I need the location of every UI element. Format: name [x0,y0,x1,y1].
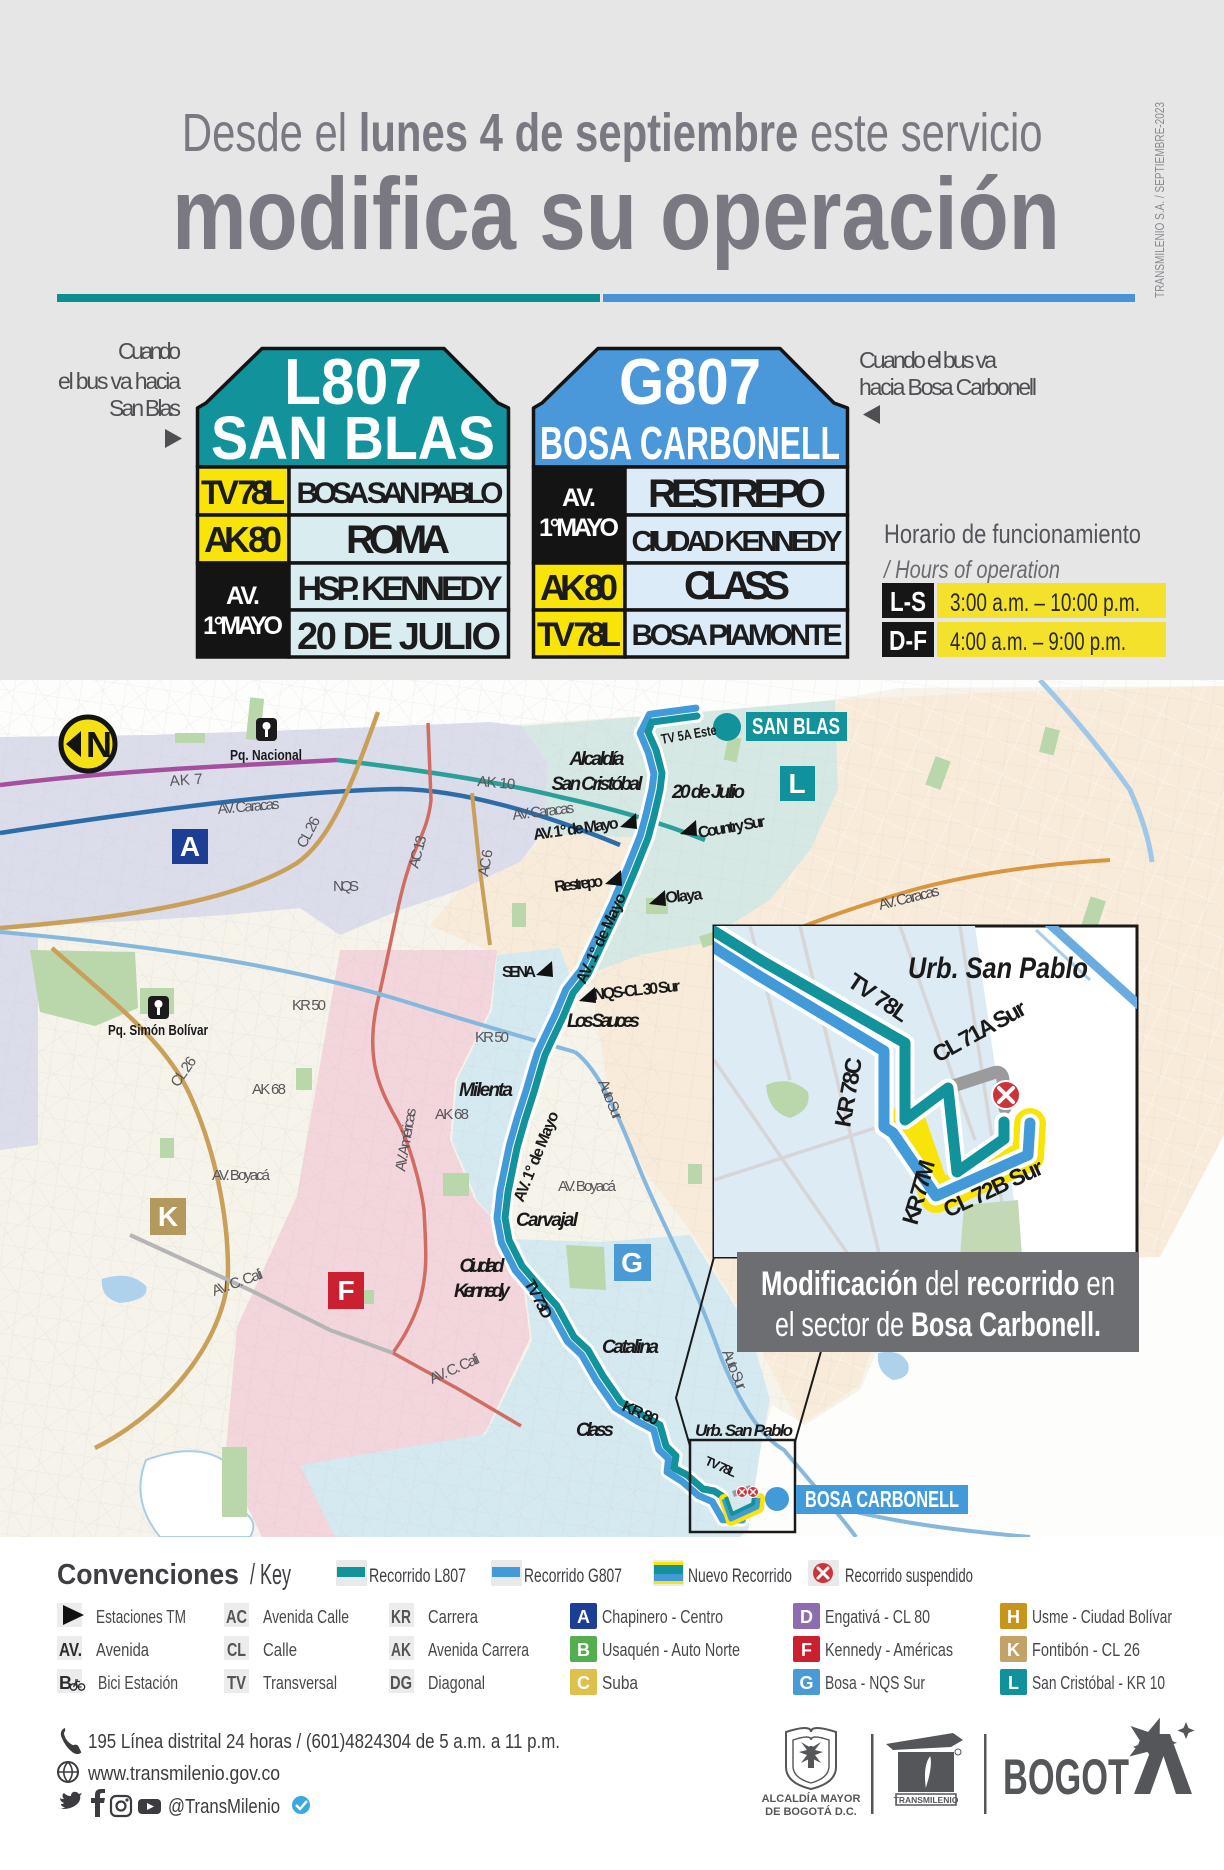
svg-text:N: N [86,724,112,765]
svg-text:SAN BLAS: SAN BLAS [211,404,495,472]
svg-text:Usme - Ciudad Bolívar: Usme - Ciudad Bolívar [1032,1607,1172,1627]
svg-text:Transversal: Transversal [263,1673,337,1693]
svg-text:Horario de funcionamiento: Horario de funcionamiento [884,519,1141,549]
svg-text:D: D [800,1607,813,1627]
svg-text:Recorrido suspendido: Recorrido suspendido [845,1566,973,1587]
svg-text:SAN BLAS: SAN BLAS [752,713,840,739]
svg-text:TRANSMILENIO: TRANSMILENIO [894,1795,959,1805]
svg-text:1°MAYO: 1°MAYO [539,514,619,542]
svg-text:K: K [158,1201,178,1232]
svg-text:Alcaldía: Alcaldía [569,749,625,770]
svg-text:Urb. San Pablo: Urb. San Pablo [908,952,1088,985]
svg-text:3:00 a.m. – 10:00 p.m.: 3:00 a.m. – 10:00 p.m. [950,589,1140,617]
svg-text:San Cristóbal: San Cristóbal [552,774,644,795]
svg-text:AK 68: AK 68 [435,1106,469,1123]
svg-text:TV 78L: TV 78L [537,616,621,654]
svg-text:Milenta: Milenta [459,1080,513,1101]
svg-text:Catalina: Catalina [602,1337,659,1358]
svg-text:BOSA PIAMONTE: BOSA PIAMONTE [632,619,843,652]
svg-text:www.transmilenio.gov.co: www.transmilenio.gov.co [87,1763,280,1785]
svg-text:Carvajal: Carvajal [516,1210,579,1231]
svg-text:Pq. Simón Bolívar: Pq. Simón Bolívar [108,1022,208,1039]
svg-text:G807: G807 [619,345,761,418]
svg-text:A: A [180,831,200,862]
svg-text:Urb. San Pablo: Urb. San Pablo [695,1421,793,1440]
svg-text:TV: TV [227,1673,246,1693]
svg-text:Nuevo Recorrido: Nuevo Recorrido [688,1566,792,1587]
svg-text:Los Sauces: Los Sauces [567,1011,640,1032]
svg-text:L: L [788,768,805,799]
svg-text:HSP. KENNEDY: HSP. KENNEDY [298,570,503,608]
svg-text:San Cristóbal - KR 10: San Cristóbal - KR 10 [1032,1673,1165,1693]
svg-text:Modificación del recorrido en: Modificación del recorrido en [761,1265,1115,1303]
svg-text:RESTREPO: RESTREPO [648,472,826,516]
svg-text:AK 80: AK 80 [204,519,282,560]
svg-text:B: B [59,1673,72,1693]
svg-text:NQS: NQS [333,878,359,895]
svg-text:@TransMilenio: @TransMilenio [168,1796,280,1818]
svg-text:DG: DG [390,1673,412,1693]
svg-text:Avenida Calle: Avenida Calle [263,1607,349,1627]
svg-text:el sector de Bosa Carbonell.: el sector de Bosa Carbonell. [775,1306,1101,1344]
svg-text:Cuando: Cuando [118,338,181,364]
svg-text:CLASS: CLASS [684,564,790,608]
svg-text:AK 68: AK 68 [252,1081,286,1098]
svg-text:Pq. Nacional: Pq. Nacional [230,747,302,764]
svg-text:Usaquén - Auto Norte: Usaquén - Auto Norte [602,1640,740,1660]
svg-text:BOGOT: BOGOT [1003,1749,1129,1805]
svg-text:Suba: Suba [602,1673,639,1693]
svg-text:ROMA: ROMA [346,518,450,562]
svg-text:Ciudad: Ciudad [460,1256,505,1277]
svg-text:AK 10: AK 10 [477,773,516,793]
svg-text:20 de Julio: 20 de Julio [671,782,745,803]
svg-text:AV. Boyacá: AV. Boyacá [558,1178,617,1195]
svg-text:Avenida: Avenida [96,1640,150,1660]
svg-text:CL: CL [227,1640,246,1660]
svg-text:KR: KR [391,1607,411,1627]
svg-text:1°MAYO: 1°MAYO [203,612,283,640]
svg-text:el bus va hacia: el bus va hacia [58,368,181,394]
svg-text:B: B [577,1640,590,1660]
svg-text:Fontibón - CL 26: Fontibón - CL 26 [1032,1640,1140,1660]
svg-text:A: A [577,1607,590,1627]
svg-text:Avenida Carrera: Avenida Carrera [428,1640,530,1660]
svg-text:AV. Boyacá: AV. Boyacá [212,1167,271,1184]
svg-text:Engativá - CL 80: Engativá - CL 80 [825,1607,930,1627]
svg-text:G: G [621,1247,643,1278]
svg-text:BOSA CARBONELL: BOSA CARBONELL [805,1486,959,1512]
svg-text:20 DE JULIO: 20 DE JULIO [297,616,501,658]
svg-text:CIUDAD KENNEDY: CIUDAD KENNEDY [632,526,843,558]
svg-text:Bosa - NQS Sur: Bosa - NQS Sur [825,1673,925,1693]
svg-text:Carrera: Carrera [428,1607,479,1627]
svg-text:Kennedy - Américas: Kennedy - Américas [825,1640,953,1660]
svg-text:G: G [799,1673,813,1693]
svg-text:Calle: Calle [263,1640,297,1660]
svg-text:BOSA CARBONELL: BOSA CARBONELL [540,417,840,469]
svg-text:KR 50: KR 50 [292,997,326,1014]
svg-text:hacia Bosa Carbonell: hacia Bosa Carbonell [859,374,1037,400]
svg-text:4:00 a.m. – 9:00 p.m.: 4:00 a.m. – 9:00 p.m. [950,628,1126,656]
svg-text:AK: AK [391,1640,411,1660]
svg-text:195 Línea distrital 24 horas /: 195 Línea distrital 24 horas / (601)4824… [88,1731,560,1753]
svg-text:AV.: AV. [562,484,596,512]
svg-text:SENA: SENA [502,964,536,981]
svg-text:AK 7: AK 7 [169,771,203,790]
svg-text:Estaciones TM: Estaciones TM [96,1607,186,1627]
svg-text:D-F: D-F [889,625,927,656]
svg-text:Bici Estación: Bici Estación [98,1673,178,1693]
svg-text:L-S: L-S [890,586,926,617]
svg-text:C: C [577,1673,590,1693]
svg-text:H: H [1007,1607,1020,1627]
svg-text:L: L [1008,1673,1019,1693]
svg-text:F: F [801,1640,812,1660]
svg-text:BOSA SAN PABLO: BOSA SAN PABLO [297,477,504,510]
svg-text:AV.: AV. [226,582,260,610]
svg-text:Kennedy: Kennedy [454,1281,511,1302]
svg-text:TV 78L: TV 78L [201,474,285,512]
svg-text:Recorrido L807: Recorrido L807 [369,1566,466,1587]
svg-text:AC: AC [226,1607,247,1627]
svg-text:San Blas: San Blas [109,395,181,421]
svg-text:Cuando el bus va: Cuando el bus va [859,347,997,373]
svg-text:Class: Class [576,1420,614,1441]
svg-text:F: F [337,1275,354,1306]
svg-text:ALCALDÍA MAYOR: ALCALDÍA MAYOR [762,1792,861,1805]
svg-text:Diagonal: Diagonal [428,1673,485,1693]
svg-text:DE BOGOTÁ D.C.: DE BOGOTÁ D.C. [765,1805,857,1818]
svg-text:AV.: AV. [59,1640,82,1660]
svg-text:/ Hours of operation: / Hours of operation [882,556,1060,584]
svg-text:AK 80: AK 80 [540,567,618,608]
svg-text:K: K [1007,1640,1020,1660]
svg-text:Recorrido G807: Recorrido G807 [524,1566,622,1587]
svg-text:Chapinero - Centro: Chapinero - Centro [602,1607,723,1627]
svg-text:KR 50: KR 50 [475,1029,509,1046]
